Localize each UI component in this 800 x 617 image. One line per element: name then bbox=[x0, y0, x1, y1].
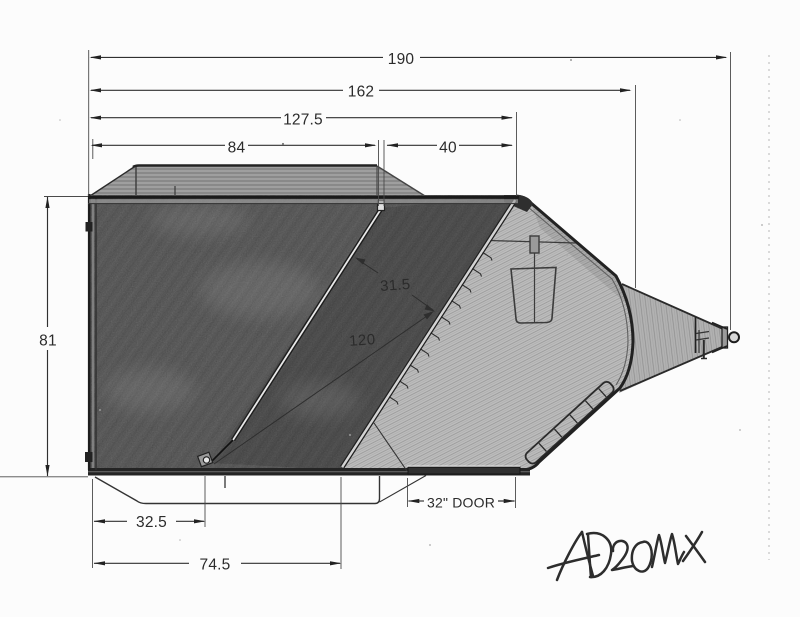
svg-text:127.5: 127.5 bbox=[283, 112, 323, 129]
svg-text:81: 81 bbox=[39, 333, 57, 350]
svg-text:74.5: 74.5 bbox=[200, 557, 231, 574]
svg-text:32" DOOR: 32" DOOR bbox=[427, 495, 495, 511]
svg-text:40: 40 bbox=[439, 140, 457, 157]
svg-text:31.5: 31.5 bbox=[380, 276, 412, 295]
svg-text:120: 120 bbox=[349, 331, 377, 350]
svg-text:32.5: 32.5 bbox=[136, 514, 167, 531]
svg-text:190: 190 bbox=[388, 51, 415, 68]
svg-text:84: 84 bbox=[228, 140, 246, 157]
svg-text:162: 162 bbox=[348, 84, 374, 101]
